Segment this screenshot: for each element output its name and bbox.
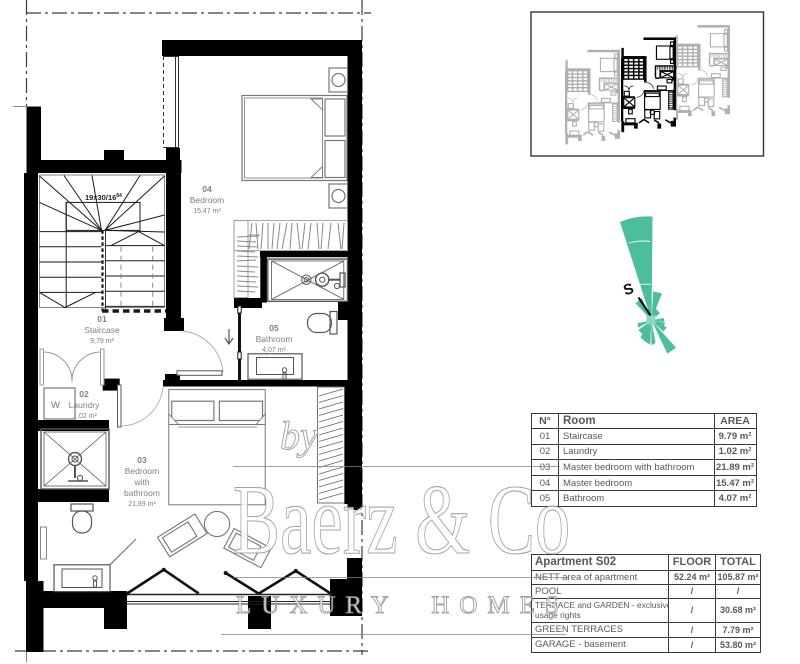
svg-text:bathroom: bathroom bbox=[124, 488, 160, 498]
svg-text:Bathroom: Bathroom bbox=[256, 334, 293, 344]
svg-text:02: 02 bbox=[79, 389, 89, 399]
svg-text:19x30/1684: 19x30/1684 bbox=[85, 193, 122, 202]
svg-text:01: 01 bbox=[97, 314, 107, 324]
svg-text:04: 04 bbox=[202, 184, 212, 194]
svg-text:S: S bbox=[621, 280, 636, 299]
svg-text:21,89 m²: 21,89 m² bbox=[128, 501, 156, 508]
svg-text:with: with bbox=[133, 477, 149, 487]
svg-text:Staircase: Staircase bbox=[84, 325, 120, 335]
svg-text:Bedroom: Bedroom bbox=[125, 466, 160, 476]
svg-text:Bedroom: Bedroom bbox=[190, 195, 225, 205]
svg-text:15,47 m²: 15,47 m² bbox=[193, 208, 221, 215]
svg-text:Laundry: Laundry bbox=[69, 400, 100, 410]
svg-text:4,07 m²: 4,07 m² bbox=[262, 347, 286, 354]
svg-text:05: 05 bbox=[269, 323, 279, 333]
svg-text:1,02 m²: 1,02 m² bbox=[73, 413, 97, 420]
svg-text:W: W bbox=[51, 400, 60, 411]
svg-text:9,79 m²: 9,79 m² bbox=[90, 338, 114, 345]
svg-text:03: 03 bbox=[137, 455, 147, 465]
